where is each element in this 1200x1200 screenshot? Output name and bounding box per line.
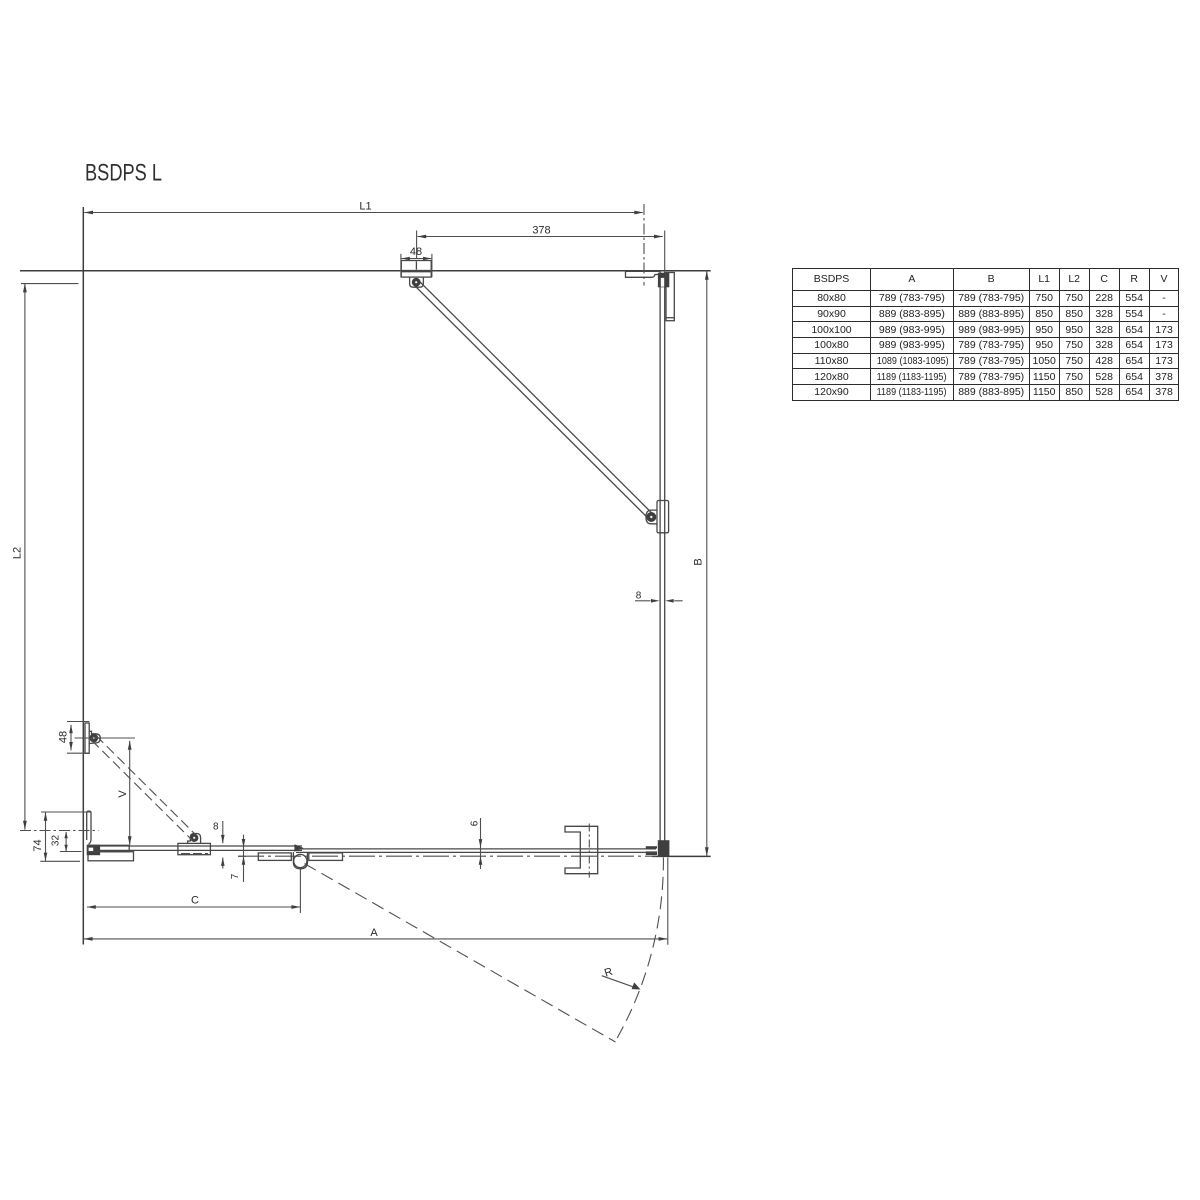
svg-text:BSDPS L: BSDPS L	[85, 160, 162, 187]
svg-text:74: 74	[32, 839, 44, 851]
svg-text:48: 48	[58, 731, 70, 743]
svg-text:B: B	[693, 558, 705, 565]
svg-text:7: 7	[230, 873, 241, 879]
svg-text:L1: L1	[359, 201, 371, 213]
svg-text:V: V	[117, 790, 129, 798]
svg-text:C: C	[191, 895, 199, 907]
svg-text:32: 32	[51, 835, 62, 847]
svg-text:6: 6	[470, 820, 481, 826]
svg-text:8: 8	[213, 822, 219, 833]
svg-text:8: 8	[636, 591, 642, 602]
svg-text:A: A	[370, 927, 378, 939]
svg-text:L2: L2	[12, 547, 24, 559]
svg-text:48: 48	[410, 246, 422, 258]
svg-text:378: 378	[532, 225, 550, 237]
svg-text:R: R	[603, 966, 614, 980]
